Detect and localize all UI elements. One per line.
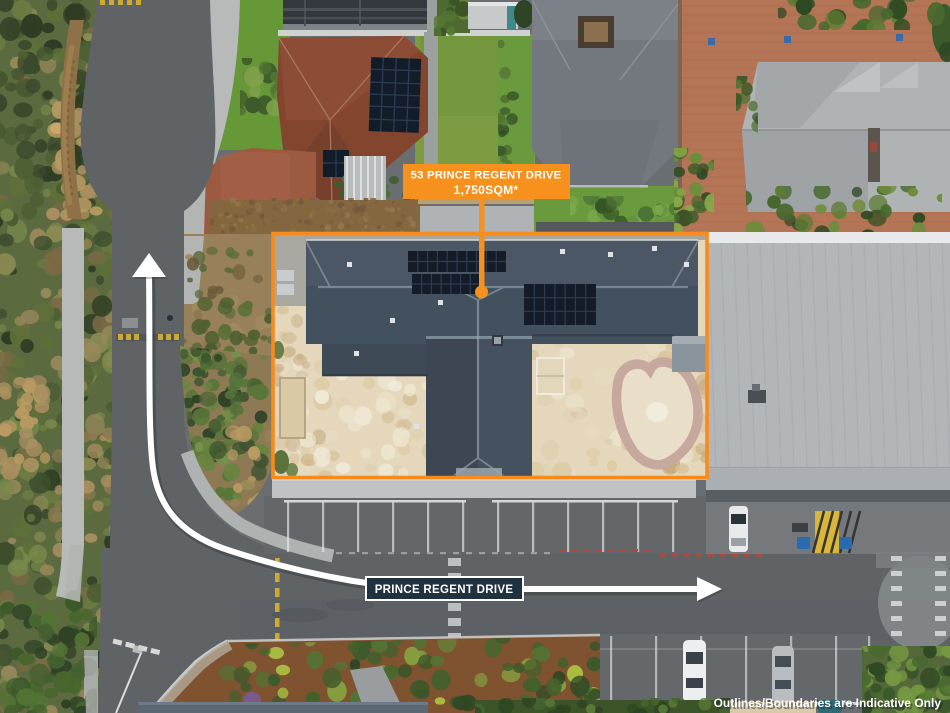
svg-text:PRINCE REGENT DRIVE: PRINCE REGENT DRIVE <box>375 584 514 596</box>
svg-text:Outlines/Boundaries are Indica: Outlines/Boundaries are Indicative Only <box>714 696 942 710</box>
svg-text:53 PRINCE REGENT DRIVE: 53 PRINCE REGENT DRIVE <box>411 170 562 182</box>
svg-text:1,750SQM*: 1,750SQM* <box>454 183 519 197</box>
